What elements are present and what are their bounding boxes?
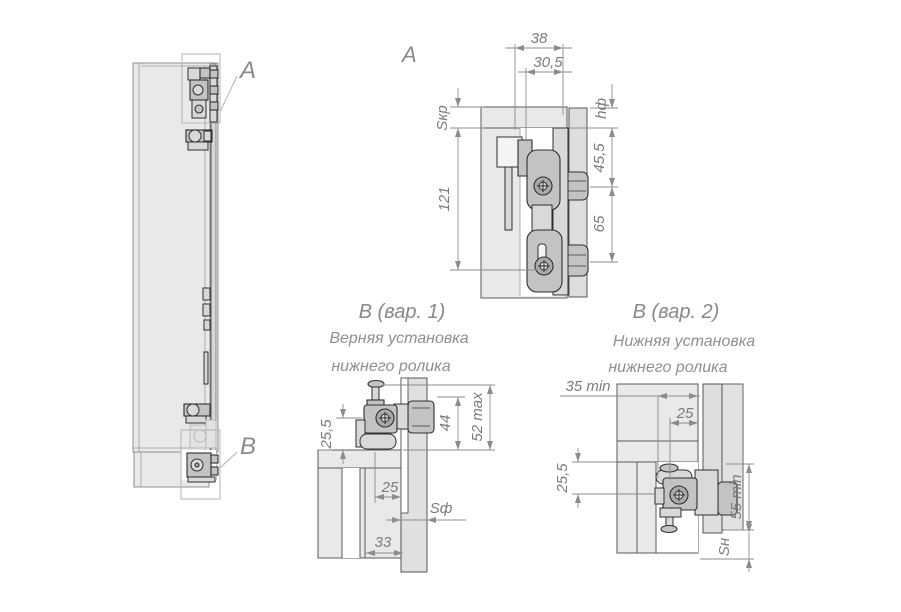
detail-a: A bbox=[400, 30, 618, 298]
dim-25-b2: 25 bbox=[676, 405, 694, 422]
b2-title: B (вар. 2) bbox=[633, 301, 720, 323]
b2-subtitle-1: Нижняя установка bbox=[613, 333, 755, 350]
callout-a-leader bbox=[220, 76, 237, 112]
screw-top bbox=[534, 177, 552, 195]
dim-45-5: 45,5 bbox=[591, 143, 608, 173]
detail-b-var2: B (вар. 2) Нижняя установка нижнего роли… bbox=[554, 301, 755, 572]
screw-bottom bbox=[535, 257, 553, 275]
dim-30-5: 30,5 bbox=[533, 54, 563, 71]
dim-25-5-b1: 25,5 bbox=[318, 419, 335, 450]
b1-screw bbox=[376, 409, 394, 427]
b2-subtitle-2: нижнего ролика bbox=[608, 359, 727, 376]
dim-65: 65 bbox=[591, 215, 608, 232]
dim-sf: Sф bbox=[430, 500, 453, 517]
b1-title: B (вар. 1) bbox=[359, 301, 446, 323]
upper-hinge bbox=[186, 130, 212, 150]
dim-hf: hф bbox=[593, 98, 610, 119]
dim-52max: 52 max bbox=[469, 392, 486, 442]
dim-skr: Sкр bbox=[434, 105, 451, 130]
dim-35min: 35 min bbox=[565, 378, 610, 395]
technical-drawing-page: A B A bbox=[0, 0, 901, 612]
dim-55min: 55 min bbox=[728, 474, 745, 519]
overview-figure: A B bbox=[133, 54, 256, 499]
callout-a-letter: A bbox=[238, 57, 256, 84]
dim-25-5-b2: 25,5 bbox=[554, 463, 571, 494]
detail-a-label: A bbox=[400, 42, 417, 67]
top-roller-mechanism bbox=[188, 66, 218, 122]
detail-b-var1: B (вар. 1) Верняя установка нижнего роли… bbox=[318, 301, 495, 572]
b1-subtitle-2: нижнего ролика bbox=[331, 358, 450, 375]
bottom-roller-mechanism bbox=[187, 453, 218, 482]
dim-121: 121 bbox=[436, 186, 453, 211]
dim-33: 33 bbox=[375, 534, 392, 551]
dim-25-b1: 25 bbox=[381, 479, 399, 496]
dim-44: 44 bbox=[437, 415, 454, 432]
callout-b-letter: B bbox=[240, 433, 256, 460]
dim-sn: Sн bbox=[716, 538, 733, 556]
b1-door-rail bbox=[401, 378, 408, 513]
b1-subtitle-1: Верняя установка bbox=[329, 330, 468, 347]
callout-b-leader bbox=[220, 452, 237, 468]
b2-screw bbox=[670, 486, 688, 504]
dim-38: 38 bbox=[531, 30, 548, 47]
furniture-sliding-door-drawing: A B A bbox=[0, 0, 901, 612]
